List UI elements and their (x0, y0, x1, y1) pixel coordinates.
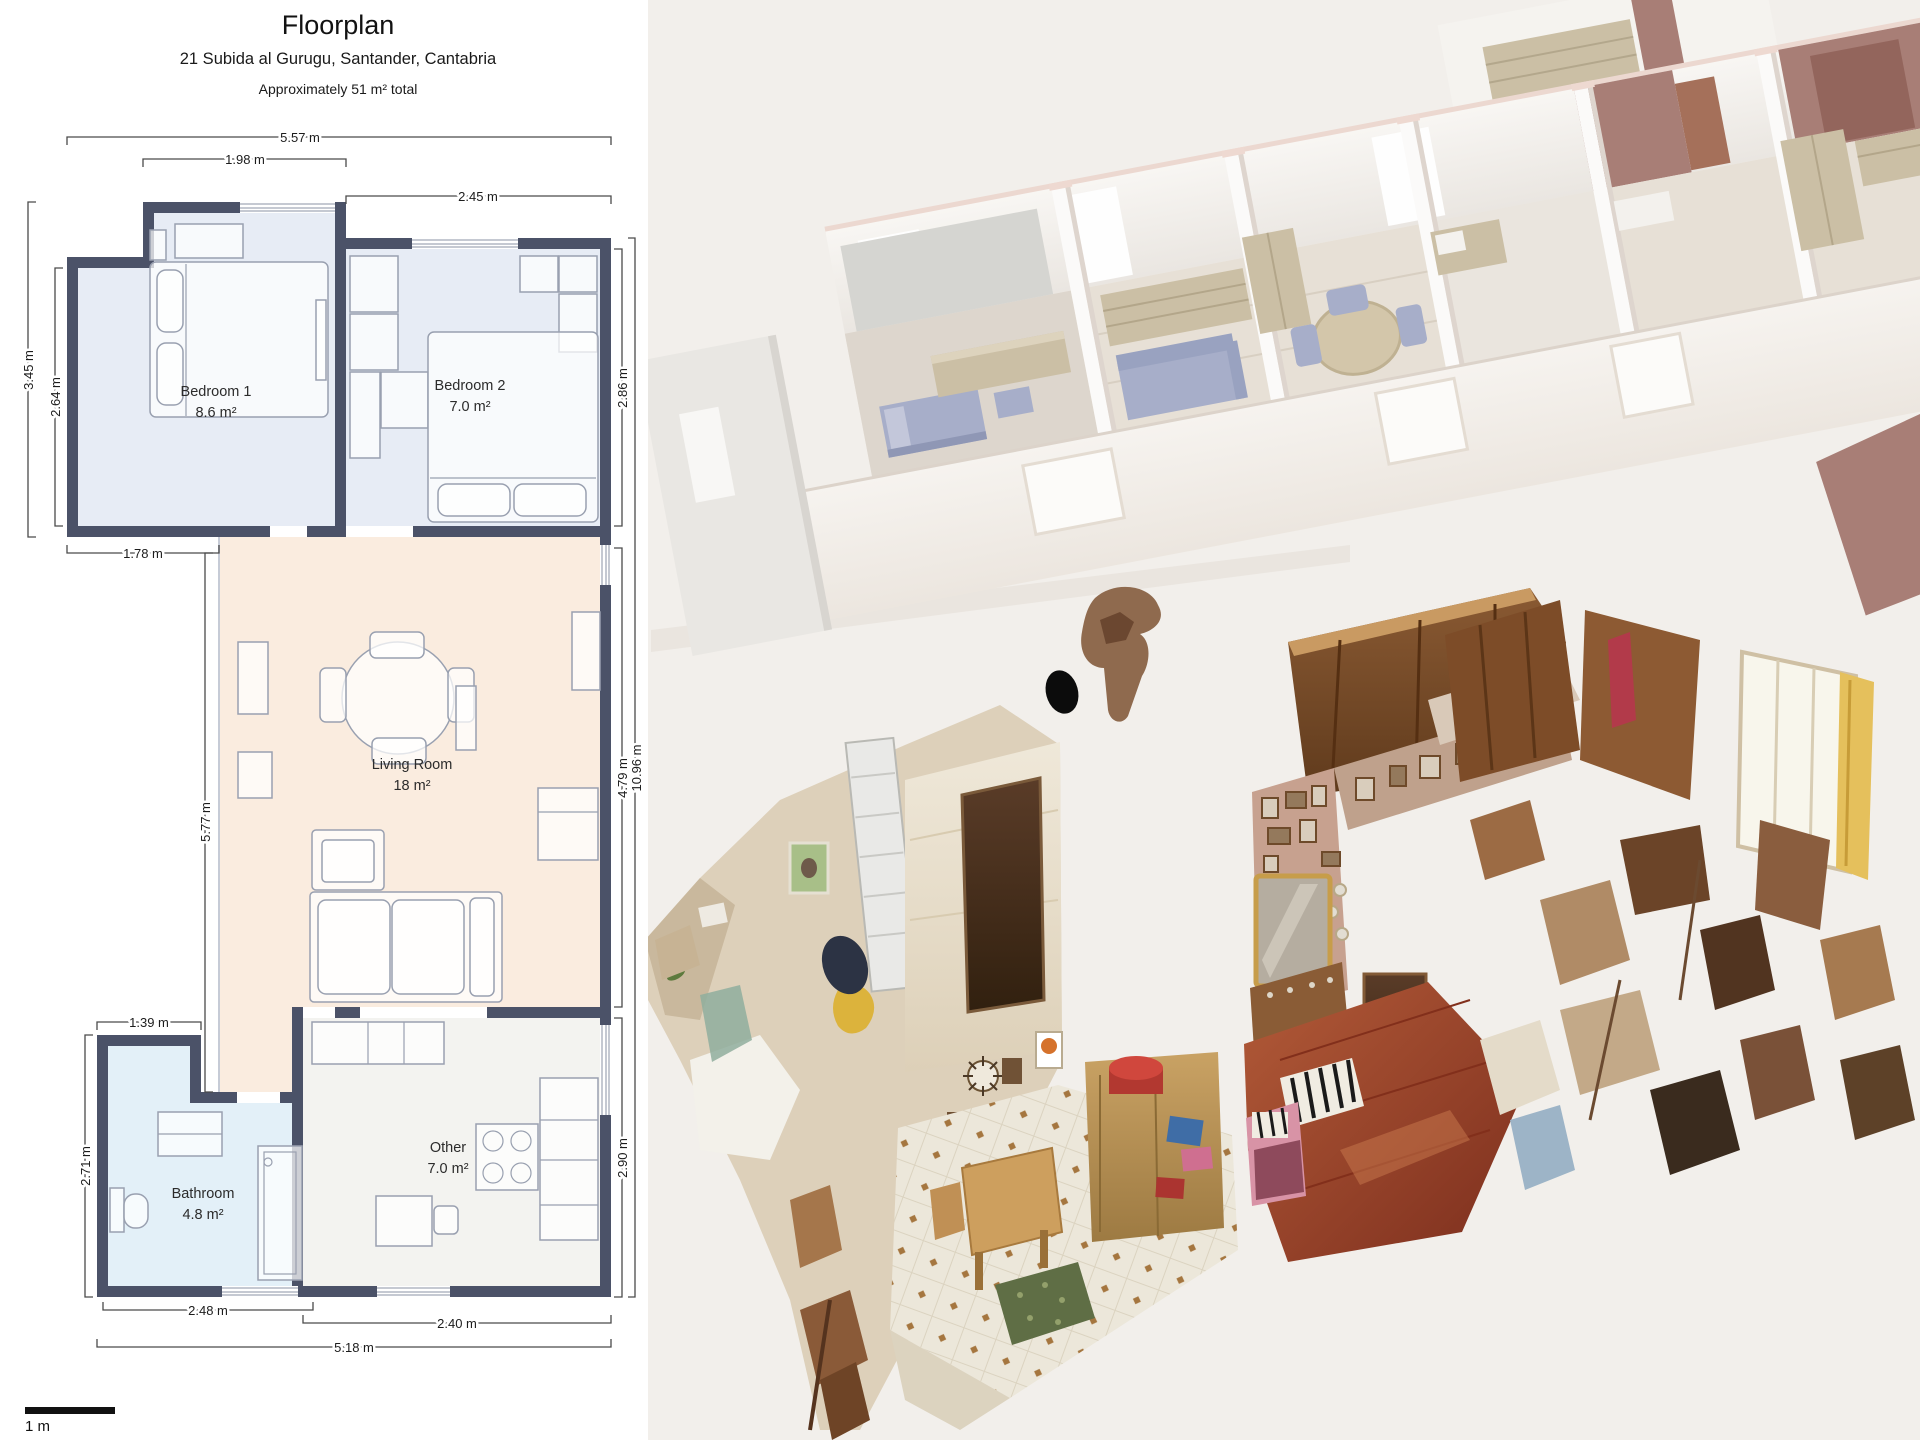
label-bathroom-area: 4.8 m² (182, 1207, 223, 1223)
dim-bathroom-bottom: 2.48 m (188, 1303, 228, 1318)
scale-label: 1 m (25, 1418, 50, 1435)
dim-corridor: 5.77 m (198, 802, 213, 842)
page-title: Floorplan (282, 10, 395, 40)
dim-living-right: 4.79 m (615, 758, 630, 798)
label-bathroom: Bathroom (172, 1186, 235, 1202)
room-corridor (219, 537, 292, 1092)
dim-bathroom-left: 2.71 m (78, 1146, 93, 1186)
total-area: Approximately 51 m² total (259, 81, 418, 97)
floorplan-2d-panel: Floorplan 21 Subida al Gurugu, Santander… (0, 0, 648, 1440)
dim-below-bedroom1: 1.78 m (123, 546, 163, 561)
dim-bottom-total: 5.18 m (334, 1340, 374, 1355)
label-bedroom2-area: 7.0 m² (449, 399, 490, 415)
dim-bedroom2-top: 2.45 m (458, 189, 498, 204)
dim-bathroom-top: 1.39 m (129, 1015, 169, 1030)
dim-bedroom1-top: 1.98 m (225, 152, 265, 167)
scan-wall-clock (963, 1056, 1003, 1096)
dim-left-inner: 2.64 m (48, 377, 63, 417)
dim-left-outer: 3.45 m (21, 350, 36, 390)
label-living-area: 18 m² (393, 778, 430, 794)
label-living: Living Room (372, 757, 453, 773)
label-bedroom1-area: 8.6 m² (195, 405, 236, 421)
views-panel (648, 0, 1920, 1440)
dim-other-bottom: 2.40 m (437, 1316, 477, 1331)
scan-doorway (962, 778, 1044, 1012)
address: 21 Subida al Gurugu, Santander, Cantabri… (180, 50, 497, 68)
title-block: Floorplan 21 Subida al Gurugu, Santander… (180, 10, 497, 97)
label-other-area: 7.0 m² (427, 1161, 468, 1177)
label-other: Other (430, 1140, 466, 1156)
scale-bar: 1 m (25, 1407, 115, 1435)
scan-yellow-curtain (1836, 672, 1874, 880)
dim-bedroom2-right: 2.86 m (615, 368, 630, 408)
dim-right-total: 10.96 m (629, 745, 644, 792)
label-bedroom1: Bedroom 1 (181, 384, 252, 400)
dim-top-total: 5.57 m (280, 130, 320, 145)
dim-other-right: 2.90 m (615, 1138, 630, 1178)
label-bedroom2: Bedroom 2 (435, 378, 506, 394)
floorplan-report: Floorplan 21 Subida al Gurugu, Santander… (0, 0, 1920, 1440)
